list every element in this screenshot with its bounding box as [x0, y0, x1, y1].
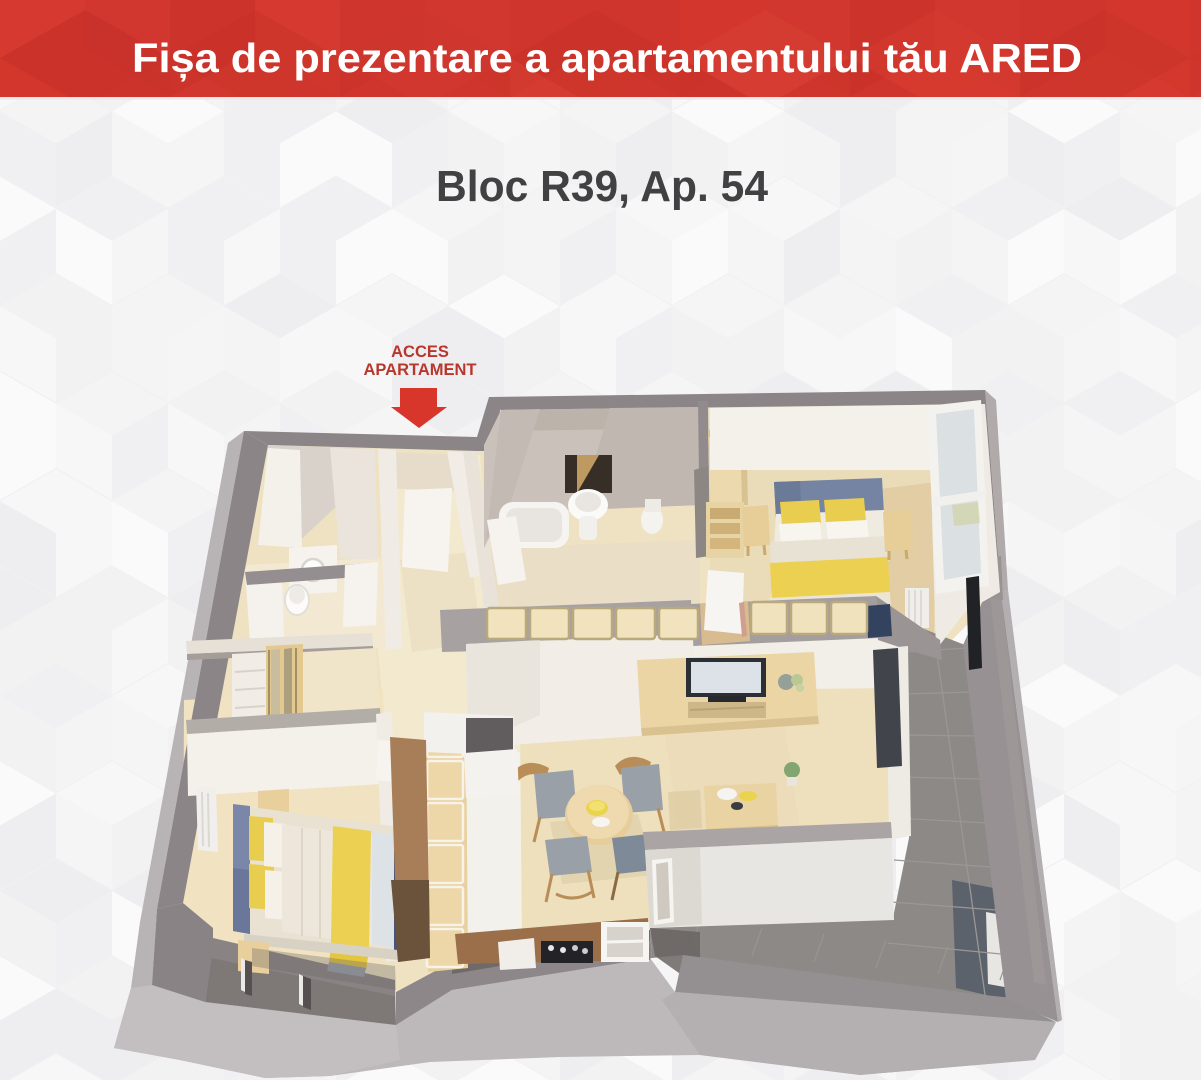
svg-text:Fișa de prezentare a apartamen: Fișa de prezentare a apartamentului tău … [132, 35, 1082, 81]
svg-text:APARTAMENT: APARTAMENT [363, 361, 476, 379]
svg-text:ACCES: ACCES [391, 343, 449, 361]
svg-text:Bloc R39, Ap. 54: Bloc R39, Ap. 54 [436, 162, 769, 211]
